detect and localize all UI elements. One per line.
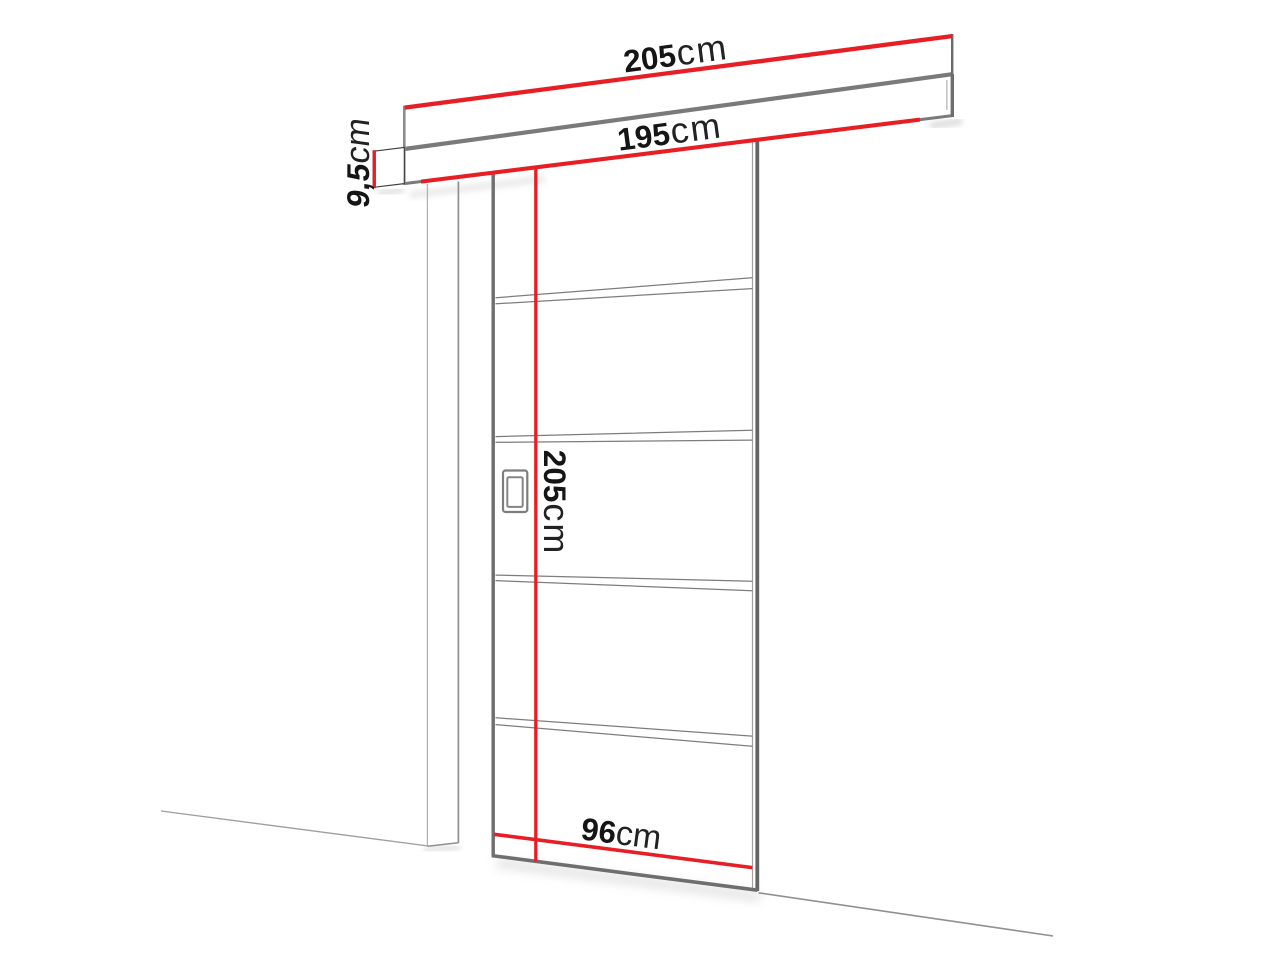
svg-text:205cm: 205cm xyxy=(536,450,577,556)
svg-text:9,5cm: 9,5cm xyxy=(339,115,377,209)
